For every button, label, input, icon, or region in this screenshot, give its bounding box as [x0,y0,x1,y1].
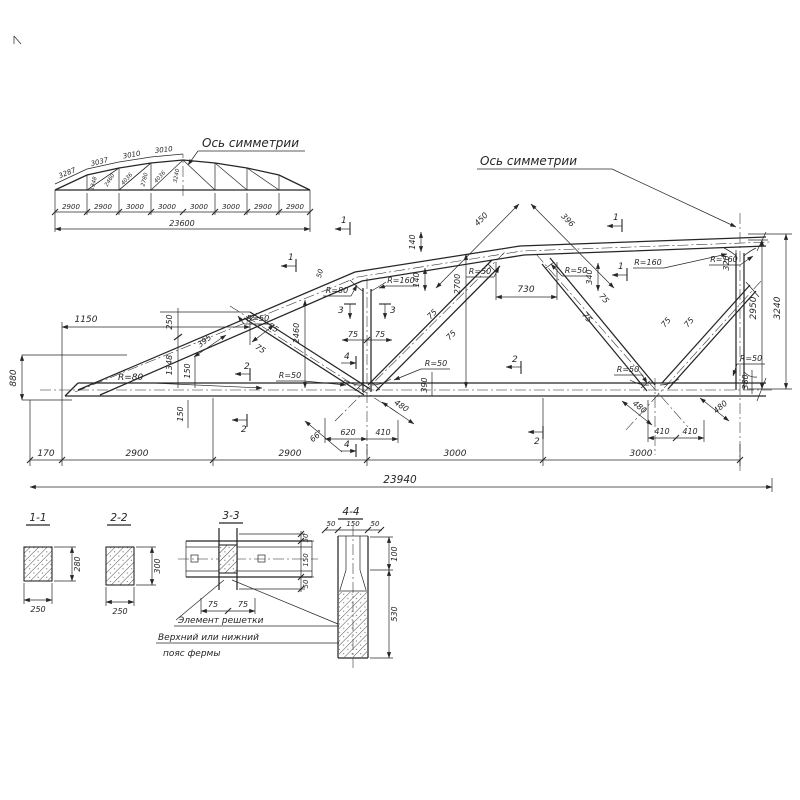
radius-r50-6: R=50 [617,365,639,374]
vertical-members [350,248,756,392]
dim-2900-b: 2900 [279,449,302,459]
dims-75: 75 75 75 75 75 75 75 75 75 75 [252,292,696,356]
dims-bottom-rows: 170 2900 2900 3000 3000 23940 [27,398,772,492]
axis-label-group: Ось симметрии [477,154,736,227]
dim-150-b: 150 [176,406,185,421]
scan-artifact [14,36,21,44]
section-2-2-width: 250 [112,607,127,616]
overview-truss: Ось симметрии 3287 3037 3010 3010 1348 2… [52,136,313,232]
dim-380: 380 [741,374,750,389]
section-mark-4a: 4 [344,352,350,362]
radius-r50-5: R=50 [565,266,587,275]
section-mark-2b: 2 [241,425,247,435]
radius-r80-2: R=80 [326,286,348,295]
dim-label: 3240 [173,168,181,183]
dim-150-a: 150 [183,363,192,378]
radius-r160-2: R=160 [634,258,662,267]
radius-r50-3: R=50 [425,359,447,368]
dim-250: 250 [165,314,174,329]
overview-axis-label: Ось симметрии [202,136,299,150]
section-2-2-title: 2-2 [110,512,127,524]
radius-r50-7: R=50 [740,354,762,363]
dim-880: 880 [9,369,19,386]
section-4-4-dim-50b: 50 [371,520,380,528]
dim-label: 2900 [94,203,112,211]
dims-joint2: 480 480 410 410 [622,398,729,442]
dim-410-a: 410 [375,428,390,437]
section-mark-3a: 3 [338,306,344,316]
dim-50-kink: 50 [315,268,325,279]
drawing-sheet: Ось симметрии 3287 3037 3010 3010 1348 2… [0,0,800,800]
section-mark-2c: 2 [512,355,518,365]
dim-3000-b: 3000 [630,449,653,459]
dim-75: 75 [659,316,672,330]
section-mark-2d: 2 [534,437,540,447]
radius-r160-3: R=160 [710,255,738,264]
dim-3000-a: 3000 [444,449,467,459]
section-mark-3b: 3 [390,306,396,316]
elevation-axis-label: Ось симметрии [480,154,577,168]
section-mark-1c: 1 [613,213,619,223]
section-1-1: 1-1 280 250 [24,512,82,614]
dim-label: 2900 [254,203,272,211]
section-mark-4b: 4 [344,440,350,450]
dim-1348: 1348 [165,355,174,375]
section-4-4-title: 4-4 [342,506,359,518]
section-4-4-dim-50a: 50 [327,520,336,528]
callout-chord-line2: пояс фермы [163,649,220,659]
radius-r50-1: R=50 [247,314,269,323]
dim-480-b: 480 [631,399,649,416]
dim-75: 75 [375,330,385,339]
section-mark-2a: 2 [244,362,250,372]
section-3-3-dim-75b: 75 [238,600,248,609]
dim-75: 75 [597,292,610,306]
dim-2950: 2950 [749,296,759,319]
sections: 1-1 280 250 2-2 300 250 [24,506,399,668]
dim-label: 3000 [158,203,176,211]
dim-label: 1348 [89,176,99,192]
section-mark-1b: 1 [341,216,347,226]
section-4-4-dim-530: 530 [390,606,399,621]
dim-410-c: 410 [682,427,697,436]
dim-75: 75 [348,330,358,339]
dim-75: 75 [425,307,439,321]
dim-410-b: 410 [654,427,669,436]
truss-drawing: Ось симметрии 3287 3037 3010 3010 1348 2… [0,0,800,800]
dim-2700: 2700 [453,274,462,294]
dim-66deg: 66° [308,428,325,444]
dim-2460: 2460 [292,323,301,343]
dim-label: 2900 [62,203,80,211]
dims-joint1: 620 410 480 66° [305,398,414,452]
dim-2900-a: 2900 [126,449,149,459]
section-mark-1d: 1 [618,262,624,272]
section-2-2: 2-2 300 250 [106,512,162,616]
dim-label: 3000 [222,203,240,211]
callout-chord-line1: Верхний или нижний [158,633,259,643]
section-1-1-height: 280 [73,556,82,571]
dim-450: 450 [473,211,490,228]
radius-r50-2: R=50 [279,371,301,380]
section-3-3-title: 3-3 [222,510,239,522]
dim-label: 3000 [126,203,144,211]
section-3-3-dim-50b: 50 [302,579,310,588]
dim-730: 730 [517,285,534,295]
radius-r50-4: R=50 [469,267,491,276]
dim-total-23940: 23940 [383,474,417,486]
dim-396: 396 [559,212,576,229]
dim-label: 3010 [155,145,174,155]
dim-label: 4036 [153,170,167,185]
section-3-3-dim-150: 150 [302,553,310,567]
section-2-2-height: 300 [153,558,162,573]
section-3-3: 3-3 50 150 50 [156,510,360,659]
section-mark-1a: 1 [288,253,294,263]
callout-lattice-element: Элемент решетки [177,616,264,626]
dim-label: 3000 [190,203,208,211]
overview-bottom-dims: 2900 2900 3000 3000 3000 3000 2900 2900 … [52,190,313,232]
section-4-4-dim-100: 100 [390,546,399,561]
dim-75: 75 [444,328,458,342]
dims-left: 1150 880 250 1348 150 150 395 R=80 [9,308,262,428]
dim-3240: 3240 [773,296,783,319]
dim-label: 2780 [140,172,150,188]
section-4-4: 4-4 50 150 50 100 [322,506,399,668]
overview-total-span: 23600 [169,219,194,228]
dim-390: 390 [420,377,429,392]
section-1-1-width: 250 [30,605,45,614]
dim-label: 2460 [104,173,117,188]
dim-label: 2900 [286,203,304,211]
dim-140-a: 140 [408,234,417,249]
dim-620: 620 [340,428,355,437]
section-1-1-title: 1-1 [29,512,46,524]
dim-75: 75 [254,342,267,355]
radius-r80-label-1: R=80 [118,373,144,383]
dim-75: 75 [682,316,695,330]
dim-480-c: 480 [712,399,729,416]
section-3-3-dim-75a: 75 [208,600,218,609]
radius-r160-1: R=160 [387,276,415,285]
dim-1150: 1150 [75,315,98,325]
dim-170: 170 [37,449,54,459]
section-3-3-dim-50a: 50 [302,533,310,542]
